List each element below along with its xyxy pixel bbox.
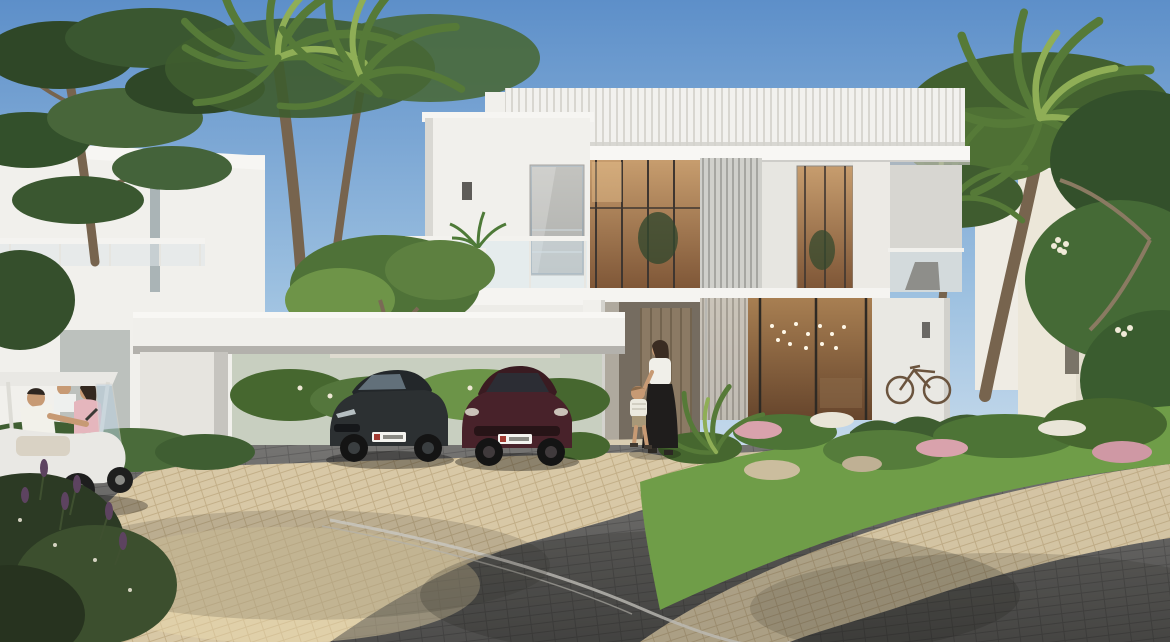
cart-seat — [16, 436, 70, 456]
indoor-plant — [638, 212, 678, 264]
render-canvas: 17 — [0, 0, 1170, 642]
suv-headlight — [465, 408, 479, 416]
wall-lamp — [922, 322, 930, 338]
wall-sconce — [462, 182, 472, 200]
child-shirt — [630, 399, 647, 417]
left-villa-balcony-rail — [0, 238, 205, 244]
white-flowers — [1038, 420, 1086, 436]
left-villa-window — [150, 182, 160, 292]
louvre-screen-upper — [700, 158, 762, 292]
white-flowers — [810, 412, 854, 428]
architectural-render: 17 — [0, 0, 1170, 642]
upper-right-window — [797, 166, 853, 290]
suv-headlight — [554, 408, 568, 416]
upper-centre-glazing — [590, 160, 700, 292]
pink-flowers — [1092, 441, 1152, 463]
garden-rock — [842, 456, 882, 472]
right-balcony — [888, 165, 964, 292]
pink-flowers — [916, 439, 968, 457]
ground-glazing — [700, 298, 872, 420]
garden-rock — [744, 460, 800, 480]
